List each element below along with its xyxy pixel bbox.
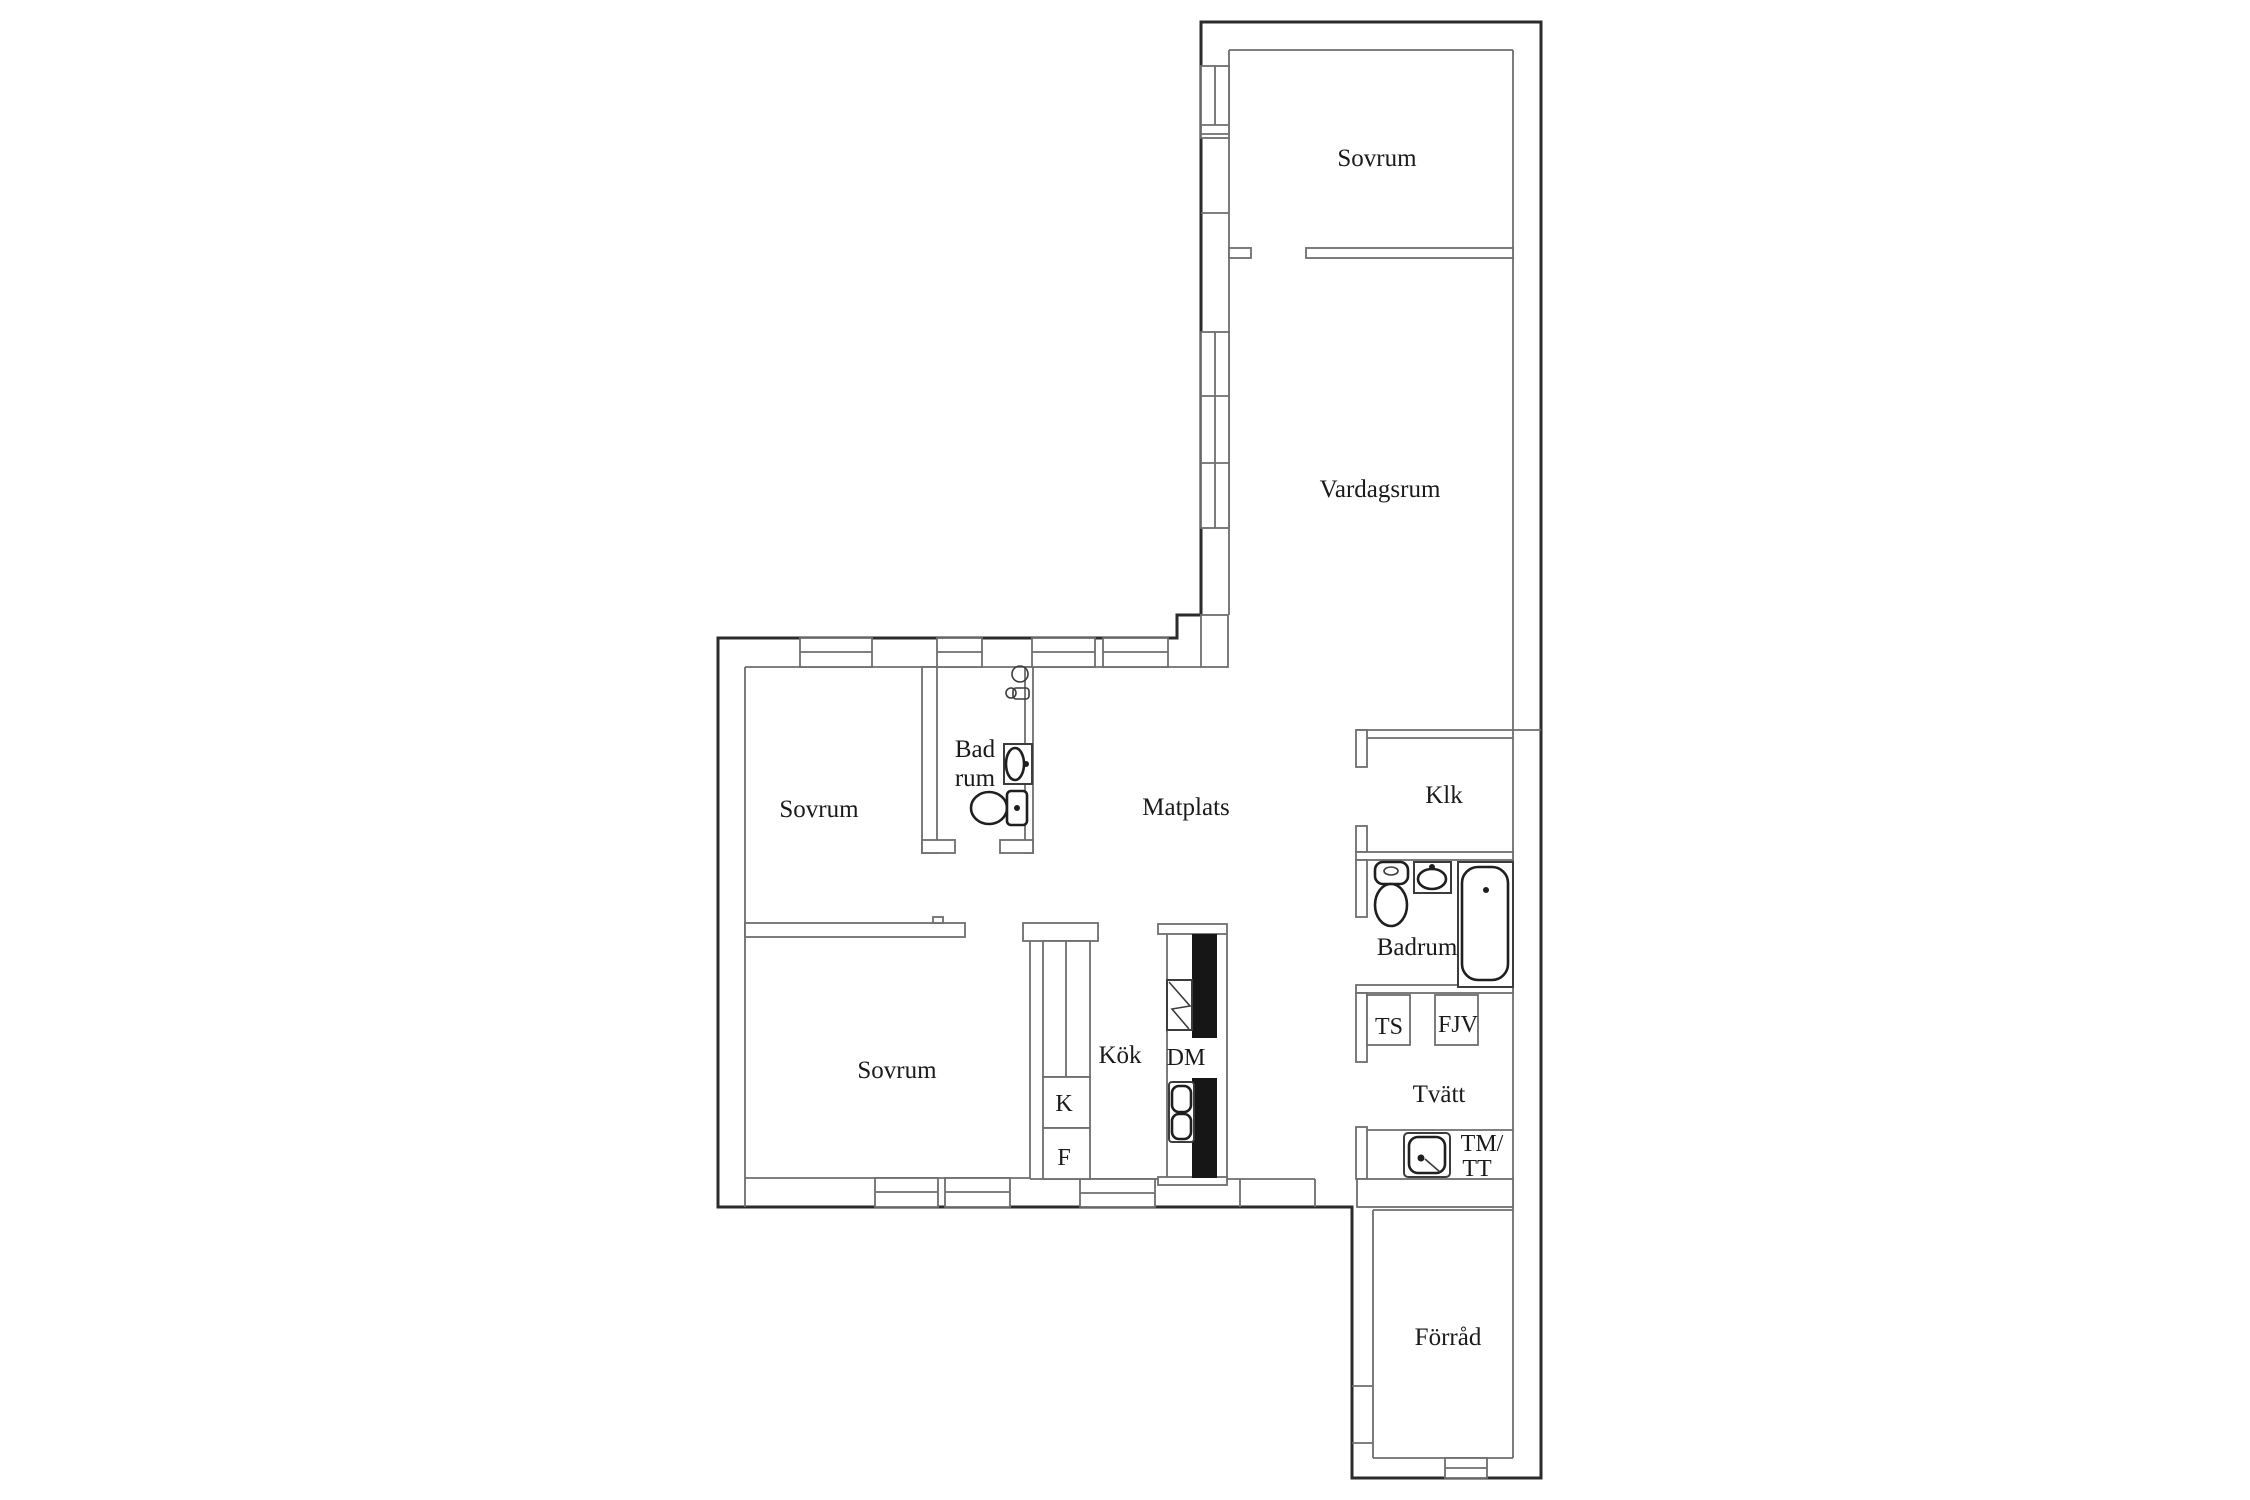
window-icon (1445, 1458, 1487, 1478)
window-icon (800, 638, 872, 667)
label-f: F (1057, 1145, 1070, 1171)
window-icon (1201, 66, 1229, 138)
kitchen-sink-icon (1169, 1082, 1194, 1142)
main-bathroom-fixtures (1375, 862, 1513, 987)
sink-icon (1414, 862, 1451, 893)
laundry-sink-icon (1404, 1133, 1450, 1177)
room-label-klk: Klk (1425, 782, 1463, 809)
counter-edge-bar (1192, 934, 1217, 1038)
window-icon (1103, 638, 1168, 667)
window-icon (945, 1178, 1010, 1207)
window-icon (937, 638, 982, 667)
room-label-badrum-small-line2: rum (955, 765, 996, 792)
room-label-badrum: Badrum (1377, 934, 1458, 961)
room-labels: Sovrum Vardagsrum Klk Badrum TS FJV Tvät… (779, 145, 1503, 1351)
bathtub-icon (1458, 862, 1513, 987)
window-icon (1032, 638, 1095, 667)
floorplan-svg: Sovrum Vardagsrum Klk Badrum TS FJV Tvät… (0, 0, 2250, 1500)
inner-walls (745, 50, 1541, 1458)
room-label-forrad: Förråd (1415, 1324, 1482, 1351)
window-icon (875, 1178, 938, 1207)
stove-icon (1167, 980, 1192, 1030)
toilet-icon (971, 791, 1027, 825)
room-label-sovrum-mid: Sovrum (779, 796, 859, 823)
sink-icon (1004, 744, 1032, 784)
counter-edge-bar (1192, 1078, 1217, 1178)
label-k: K (1055, 1091, 1073, 1117)
window-icon (1080, 1179, 1155, 1207)
label-tm: TM/ (1461, 1131, 1504, 1157)
windows (800, 66, 1487, 1478)
room-label-tvatt: Tvätt (1413, 1081, 1466, 1108)
toilet-icon (1375, 862, 1408, 926)
label-dm: DM (1167, 1045, 1206, 1071)
outer-wall (718, 22, 1541, 1478)
room-label-sovrum-top: Sovrum (1337, 145, 1417, 172)
window-icon (1201, 332, 1229, 528)
label-fjv: FJV (1438, 1012, 1479, 1038)
label-ts: TS (1375, 1014, 1403, 1040)
room-label-kok: Kök (1098, 1042, 1142, 1069)
label-tt: TT (1462, 1156, 1492, 1182)
room-label-badrum-small-line1: Bad (955, 736, 996, 763)
room-label-vardagsrum: Vardagsrum (1320, 476, 1441, 503)
wall-junction-block (1201, 615, 1228, 667)
room-label-sovrum-bottom: Sovrum (857, 1057, 937, 1084)
room-label-matplats: Matplats (1142, 794, 1230, 821)
